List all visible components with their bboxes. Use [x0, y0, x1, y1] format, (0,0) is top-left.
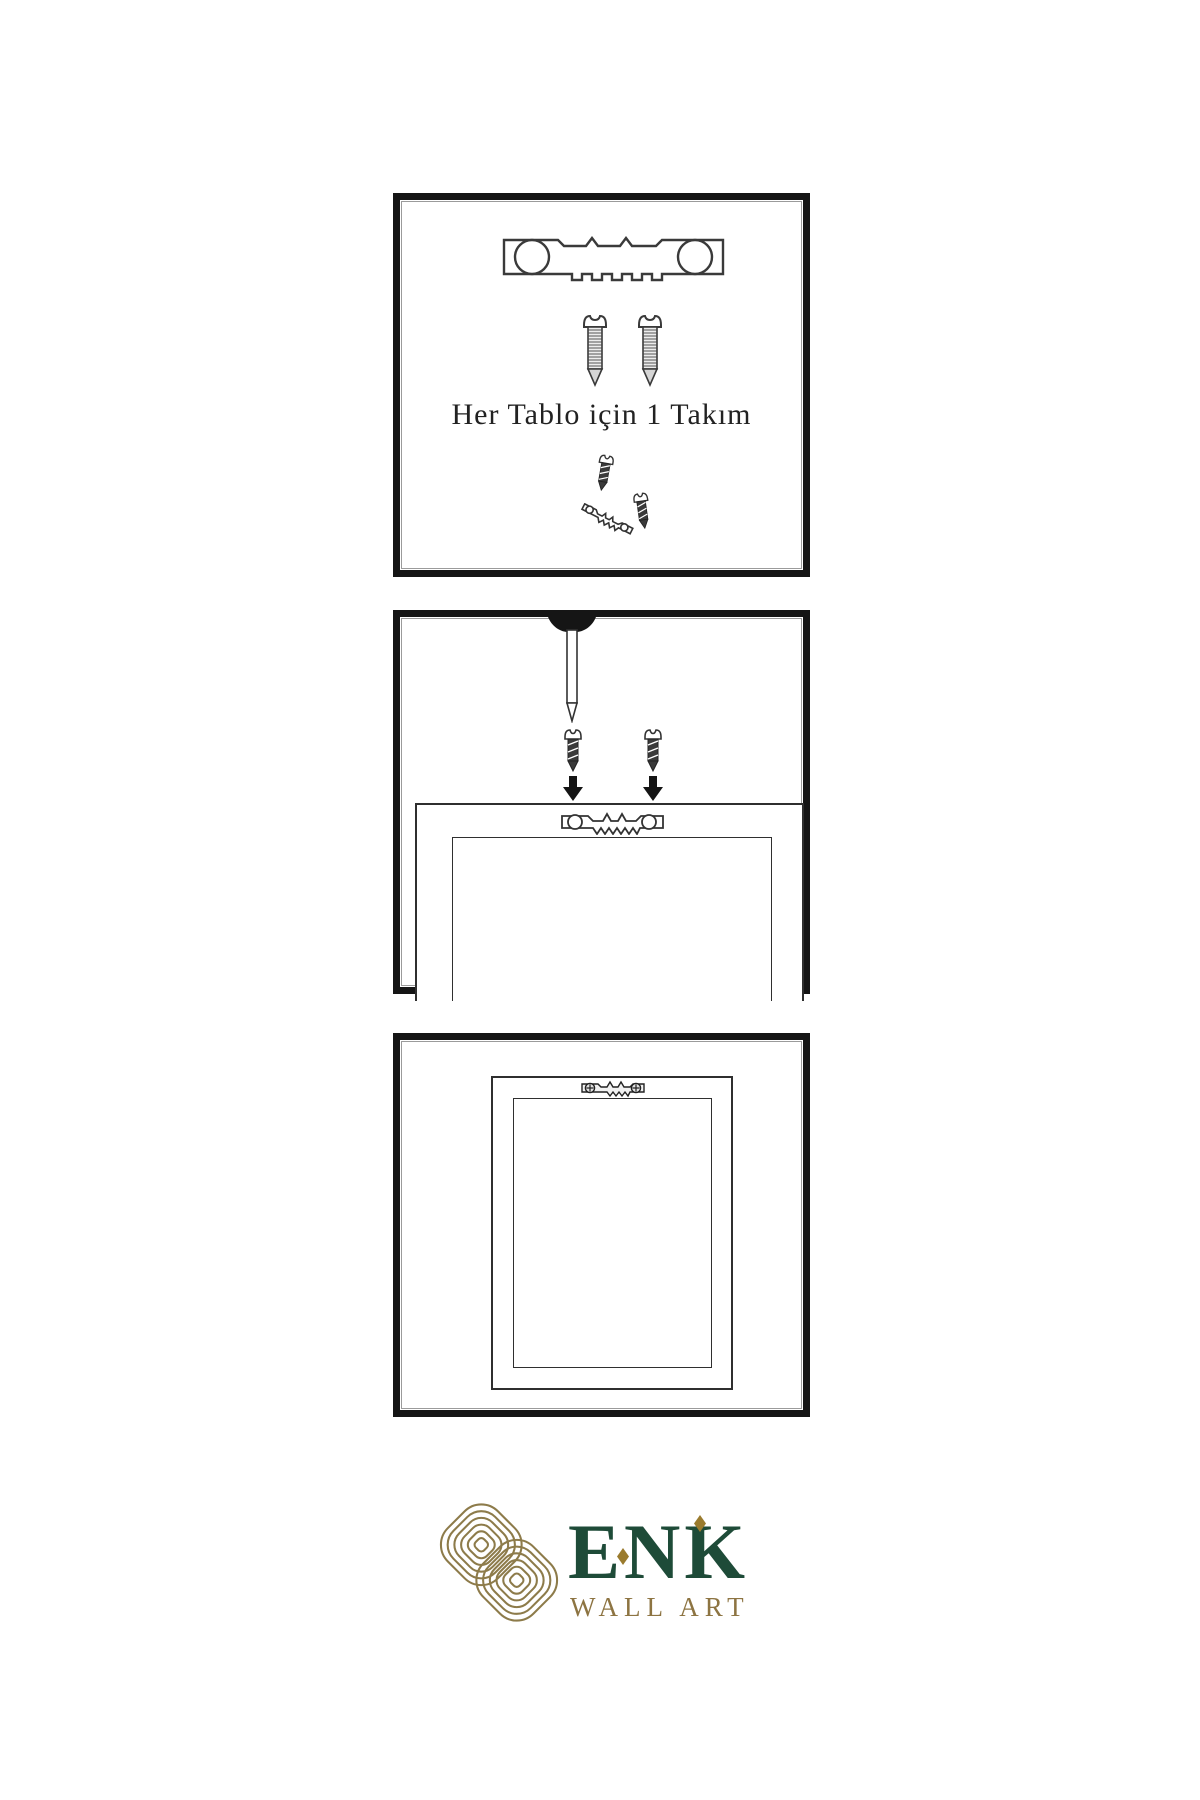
sawtooth-hanger-icon	[560, 808, 665, 835]
down-arrow-icon	[643, 776, 663, 801]
knot-logo-icon	[435, 1497, 563, 1628]
screw-icon	[579, 312, 611, 387]
instruction-panel-hardware-kit: Her Tablo için 1 Takım	[393, 193, 810, 577]
instruction-panel-hung-frame	[393, 1033, 810, 1417]
screw-icon	[634, 312, 666, 387]
down-arrow-icon	[563, 776, 583, 801]
screw-icon	[642, 727, 664, 773]
wall-nail-icon	[548, 617, 596, 723]
screw-with-angled-hanger-icon	[578, 453, 670, 549]
frame-back-inner-outline	[452, 837, 772, 1001]
brand-wordmark: ENK	[568, 1512, 749, 1592]
brand-subtitle: WALL ART	[570, 1592, 770, 1623]
instruction-sheet: Her Tablo için 1 Takım	[0, 0, 1200, 1800]
screw-icon	[562, 727, 584, 773]
kit-caption: Her Tablo için 1 Takım	[400, 398, 803, 432]
frame-front-inner-outline	[513, 1098, 712, 1368]
instruction-panel-installation	[393, 610, 810, 994]
sawtooth-hanger-icon	[502, 230, 725, 284]
mounted-sawtooth-hanger-icon	[580, 1079, 646, 1098]
